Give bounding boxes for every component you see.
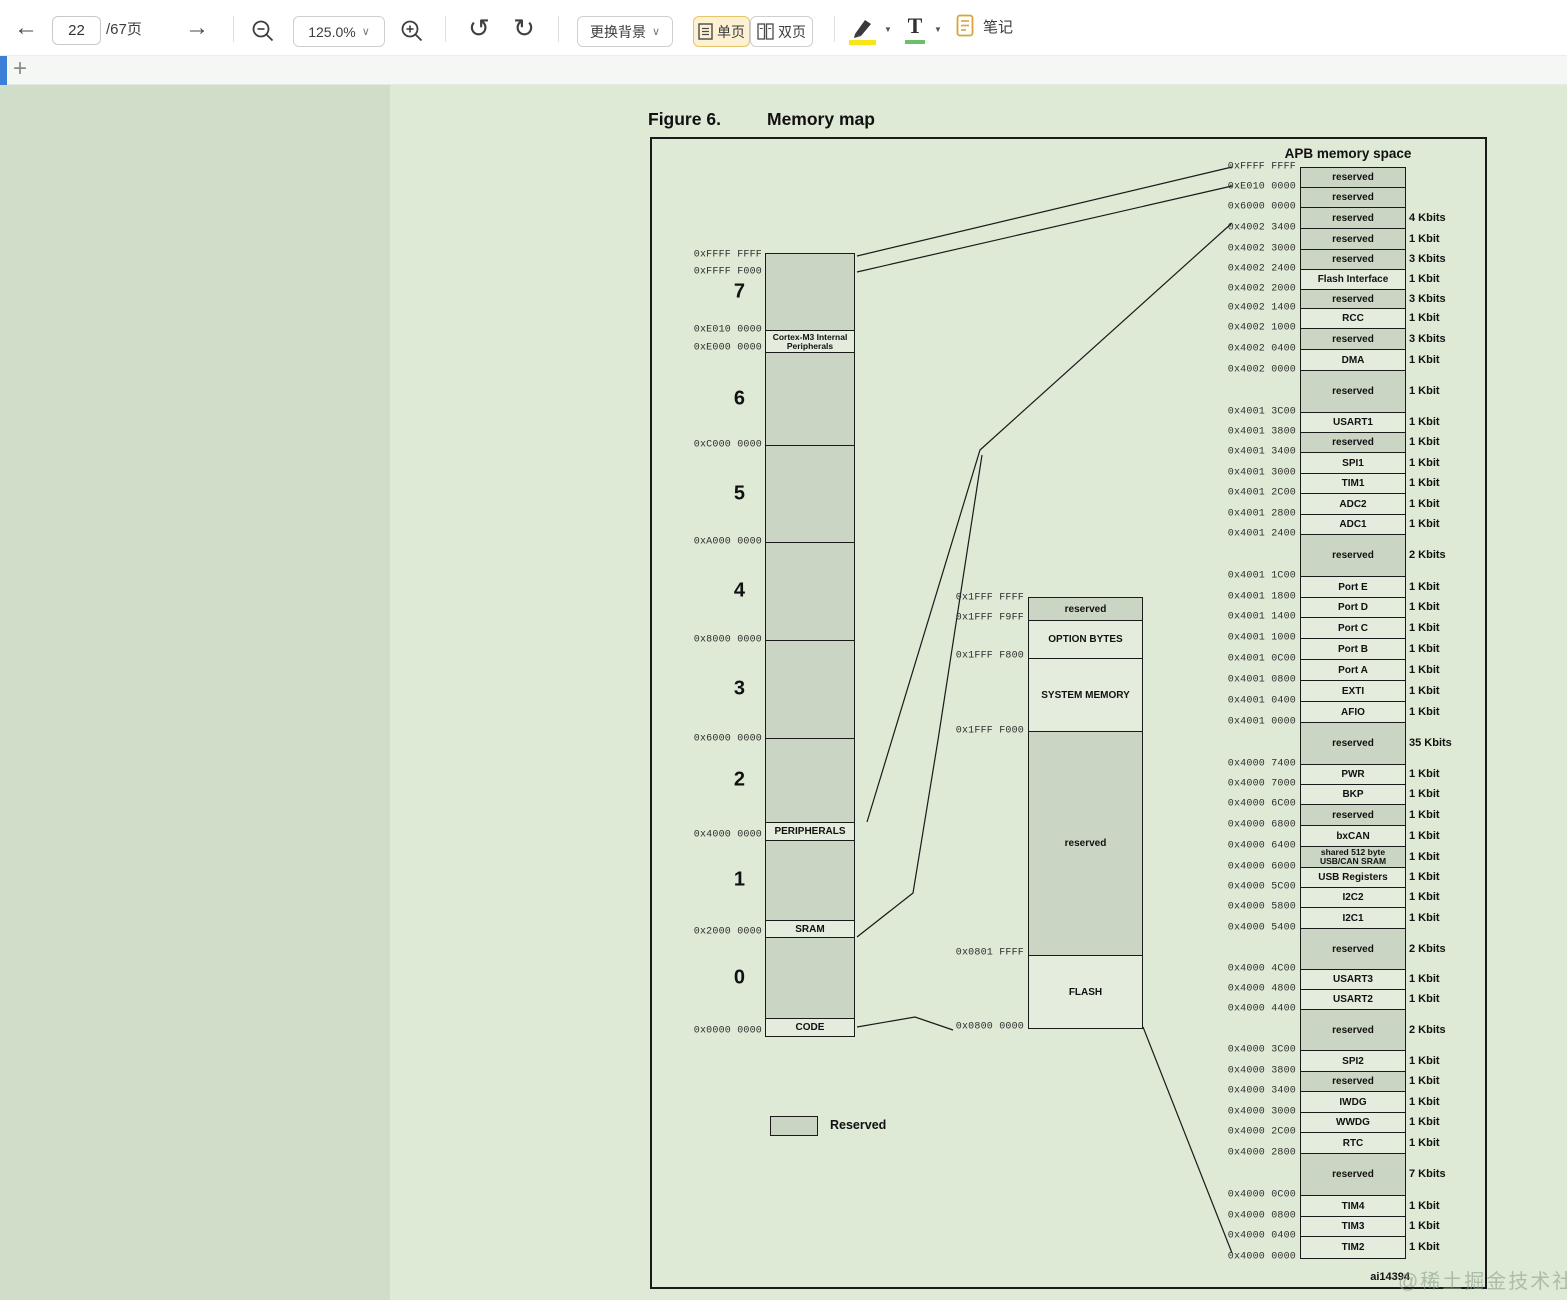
text-tool-color-bar — [905, 40, 925, 44]
single-page-button[interactable]: 单页 — [693, 16, 750, 47]
change-background-label: 更换背景 — [590, 22, 646, 42]
double-page-button[interactable]: 双页 — [750, 16, 813, 47]
change-background-dropdown[interactable]: 更换背景 ∨ — [577, 16, 673, 47]
toolbar-divider — [558, 16, 559, 42]
zoom-out-button[interactable] — [250, 18, 276, 44]
chevron-down-icon: ∨ — [652, 25, 660, 38]
pdf-page — [390, 85, 1567, 1300]
highlighter-caret-button[interactable]: ▼ — [884, 25, 892, 34]
text-tool-caret-button[interactable]: ▼ — [934, 25, 942, 34]
notes-button[interactable]: 笔记 — [956, 14, 1013, 38]
tab-bar: + — [0, 56, 1567, 85]
double-page-label: 双页 — [778, 22, 806, 42]
back-button[interactable]: ← — [12, 14, 40, 42]
toolbar-divider — [834, 16, 835, 42]
highlighter-tool-button[interactable] — [846, 13, 878, 45]
toolbar-divider — [445, 16, 446, 42]
text-tool-button[interactable]: T — [903, 13, 927, 39]
toolbar: ← /67页 → 125.0% ∨ ↺ ↻ — [0, 0, 1567, 56]
new-tab-button[interactable]: + — [13, 55, 27, 83]
zoom-level-dropdown[interactable]: 125.0% ∨ — [293, 16, 385, 47]
zoom-level-value: 125.0% — [308, 24, 355, 40]
redo-button[interactable]: ↻ — [508, 12, 540, 44]
toolbar-divider — [233, 16, 234, 42]
page-number-input[interactable] — [52, 16, 101, 45]
undo-button[interactable]: ↺ — [463, 12, 495, 44]
notes-label: 笔记 — [983, 16, 1013, 37]
single-page-icon — [698, 23, 713, 40]
magnifier-minus-icon — [250, 18, 276, 44]
note-document-icon — [956, 14, 976, 38]
active-tab-indicator[interactable] — [0, 56, 7, 85]
pdf-reader-window: ← /67页 → 125.0% ∨ ↺ ↻ — [0, 0, 1567, 1300]
single-page-label: 单页 — [717, 22, 745, 42]
site-watermark: @稀土掘金技术社区 — [1398, 1265, 1567, 1294]
page-total-label: /67页 — [106, 20, 142, 36]
forward-button[interactable]: → — [183, 14, 211, 42]
magnifier-plus-icon — [399, 18, 425, 44]
double-page-icon — [757, 23, 774, 40]
chevron-down-icon: ∨ — [362, 25, 370, 38]
highlighter-pen-icon — [846, 13, 878, 45]
zoom-in-button[interactable] — [399, 18, 425, 44]
